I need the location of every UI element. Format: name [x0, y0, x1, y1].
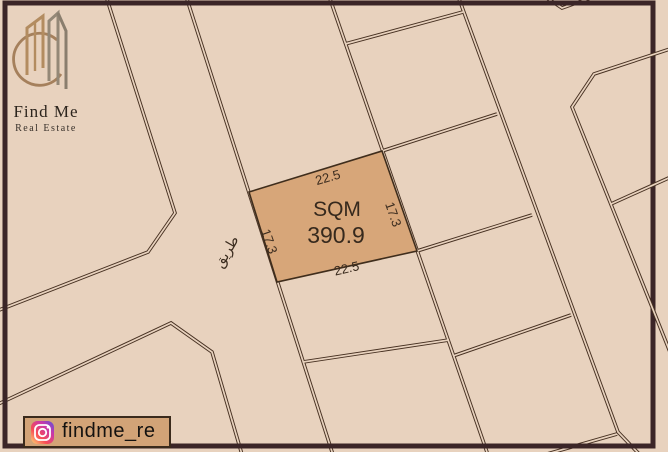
plot-area-label: SQM	[313, 198, 361, 221]
plat-map: SQM 390.9 22.5 22.5 17.3 17.3 طريق	[0, 0, 668, 452]
road-line-west-block	[0, 0, 175, 312]
instagram-badge[interactable]: findme_re	[23, 416, 171, 448]
instagram-handle: findme_re	[62, 421, 155, 443]
plot-area-value: 390.9	[307, 222, 365, 248]
listing-image: SQM 390.9 22.5 22.5 17.3 17.3 طريق Find …	[0, 0, 668, 452]
road-name-label: طريق	[211, 233, 243, 271]
parcel-divider-bottom-right	[533, 434, 617, 452]
instagram-icon	[30, 420, 55, 445]
